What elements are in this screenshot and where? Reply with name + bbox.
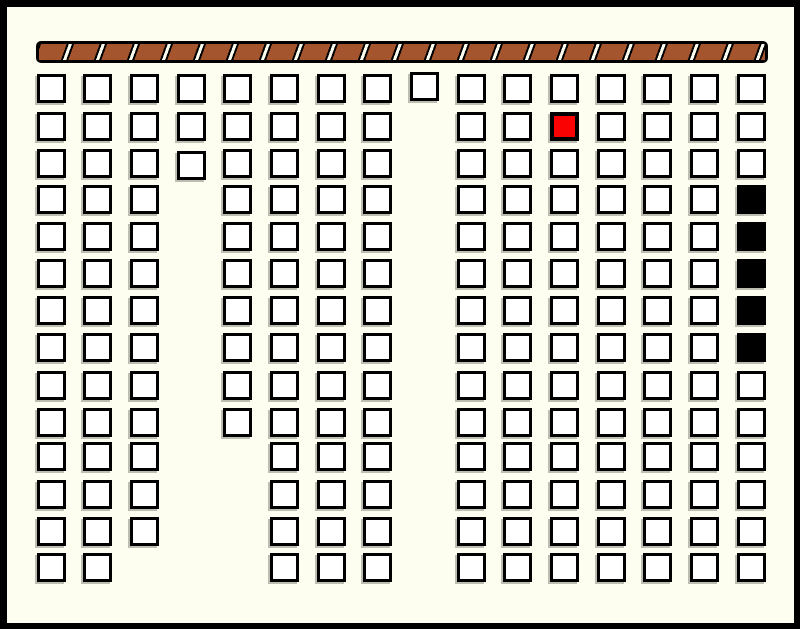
grid-cell[interactable] <box>270 296 299 325</box>
grid-cell-black[interactable] <box>737 296 766 325</box>
grid-cell[interactable] <box>317 185 346 214</box>
grid-cell[interactable] <box>643 74 672 103</box>
grid-cell[interactable] <box>457 259 486 288</box>
grid-cell[interactable] <box>457 185 486 214</box>
grid-cell[interactable] <box>223 333 252 362</box>
grid-cell[interactable] <box>737 149 766 178</box>
grid-cell[interactable] <box>223 259 252 288</box>
grid-cell[interactable] <box>130 408 159 437</box>
grid-cell[interactable] <box>130 149 159 178</box>
grid-cell[interactable] <box>503 259 532 288</box>
grid-cell[interactable] <box>503 408 532 437</box>
grid-cell[interactable] <box>737 517 766 546</box>
grid-cell[interactable] <box>83 408 112 437</box>
grid-cell[interactable] <box>550 259 579 288</box>
grid-cell-black[interactable] <box>737 222 766 251</box>
grid-cell[interactable] <box>643 517 672 546</box>
grid-cell[interactable] <box>37 296 66 325</box>
grid-cell[interactable] <box>457 371 486 400</box>
grid-cell[interactable] <box>737 112 766 141</box>
grid-cell[interactable] <box>83 222 112 251</box>
grid-cell[interactable] <box>597 408 626 437</box>
grid-cell[interactable] <box>457 112 486 141</box>
grid-cell-red[interactable] <box>550 112 579 141</box>
grid-cell[interactable] <box>317 442 346 471</box>
grid-cell[interactable] <box>690 480 719 509</box>
grid-cell[interactable] <box>643 333 672 362</box>
grid-cell[interactable] <box>177 151 206 180</box>
grid-cell[interactable] <box>503 480 532 509</box>
grid-cell[interactable] <box>317 74 346 103</box>
grid-cell[interactable] <box>317 259 346 288</box>
grid-cell[interactable] <box>223 222 252 251</box>
grid-cell[interactable] <box>37 333 66 362</box>
grid-cell[interactable] <box>690 333 719 362</box>
grid-cell[interactable] <box>83 442 112 471</box>
grid-cell[interactable] <box>83 259 112 288</box>
grid-cell[interactable] <box>503 371 532 400</box>
grid-cell[interactable] <box>37 149 66 178</box>
grid-cell[interactable] <box>37 112 66 141</box>
grid-cell[interactable] <box>83 517 112 546</box>
grid-cell[interactable] <box>503 553 532 582</box>
grid-cell[interactable] <box>130 185 159 214</box>
grid-cell[interactable] <box>37 517 66 546</box>
grid-cell[interactable] <box>690 371 719 400</box>
grid-cell[interactable] <box>550 408 579 437</box>
grid-cell[interactable] <box>690 149 719 178</box>
grid-cell[interactable] <box>597 259 626 288</box>
grid-cell[interactable] <box>503 112 532 141</box>
grid-cell[interactable] <box>363 296 392 325</box>
grid-cell[interactable] <box>363 74 392 103</box>
grid-cell[interactable] <box>503 296 532 325</box>
grid-cell[interactable] <box>363 259 392 288</box>
grid-cell[interactable] <box>550 480 579 509</box>
grid-cell[interactable] <box>270 517 299 546</box>
grid-cell[interactable] <box>550 442 579 471</box>
grid-cell[interactable] <box>317 112 346 141</box>
grid-cell[interactable] <box>363 222 392 251</box>
grid-cell[interactable] <box>317 222 346 251</box>
grid-cell[interactable] <box>130 74 159 103</box>
grid-cell[interactable] <box>503 442 532 471</box>
grid-cell[interactable] <box>317 296 346 325</box>
grid-cell[interactable] <box>410 72 439 101</box>
grid-cell[interactable] <box>597 296 626 325</box>
grid-cell[interactable] <box>597 112 626 141</box>
grid-cell[interactable] <box>177 112 206 141</box>
grid-cell[interactable] <box>457 408 486 437</box>
grid-cell[interactable] <box>37 371 66 400</box>
grid-cell[interactable] <box>597 442 626 471</box>
grid-cell[interactable] <box>270 371 299 400</box>
grid-cell[interactable] <box>270 112 299 141</box>
grid-cell-black[interactable] <box>737 259 766 288</box>
grid-cell[interactable] <box>737 408 766 437</box>
grid-cell[interactable] <box>643 112 672 141</box>
grid-cell[interactable] <box>223 371 252 400</box>
grid-cell[interactable] <box>643 259 672 288</box>
grid-cell[interactable] <box>83 480 112 509</box>
grid-cell[interactable] <box>37 222 66 251</box>
grid-cell[interactable] <box>597 74 626 103</box>
grid-cell[interactable] <box>83 333 112 362</box>
grid-cell[interactable] <box>363 112 392 141</box>
grid-cell[interactable] <box>690 185 719 214</box>
grid-cell[interactable] <box>83 149 112 178</box>
grid-cell[interactable] <box>37 442 66 471</box>
grid-cell[interactable] <box>643 149 672 178</box>
grid-cell[interactable] <box>597 222 626 251</box>
grid-cell[interactable] <box>643 185 672 214</box>
grid-cell[interactable] <box>503 333 532 362</box>
grid-cell[interactable] <box>597 517 626 546</box>
grid-cell[interactable] <box>363 408 392 437</box>
grid-cell[interactable] <box>270 222 299 251</box>
grid-cell[interactable] <box>550 185 579 214</box>
grid-cell[interactable] <box>457 442 486 471</box>
grid-cell[interactable] <box>363 149 392 178</box>
grid-cell[interactable] <box>690 259 719 288</box>
grid-cell[interactable] <box>223 74 252 103</box>
grid-cell[interactable] <box>597 149 626 178</box>
grid-cell[interactable] <box>223 112 252 141</box>
grid-cell[interactable] <box>83 112 112 141</box>
grid-cell[interactable] <box>737 74 766 103</box>
grid-cell[interactable] <box>83 371 112 400</box>
grid-cell[interactable] <box>457 480 486 509</box>
grid-cell[interactable] <box>550 296 579 325</box>
grid-cell[interactable] <box>550 333 579 362</box>
grid-cell[interactable] <box>597 553 626 582</box>
grid-cell[interactable] <box>503 149 532 178</box>
grid-cell[interactable] <box>737 480 766 509</box>
grid-cell[interactable] <box>643 480 672 509</box>
grid-cell[interactable] <box>690 296 719 325</box>
grid-cell[interactable] <box>690 222 719 251</box>
grid-cell-black[interactable] <box>737 333 766 362</box>
grid-cell[interactable] <box>690 517 719 546</box>
grid-cell[interactable] <box>130 442 159 471</box>
grid-cell[interactable] <box>503 185 532 214</box>
grid-cell[interactable] <box>130 480 159 509</box>
grid-cell[interactable] <box>270 74 299 103</box>
grid-cell[interactable] <box>643 408 672 437</box>
grid-cell[interactable] <box>550 149 579 178</box>
grid-cell[interactable] <box>270 553 299 582</box>
grid-cell[interactable] <box>643 296 672 325</box>
grid-cell[interactable] <box>690 112 719 141</box>
grid-cell[interactable] <box>37 480 66 509</box>
grid-cell[interactable] <box>83 553 112 582</box>
grid-cell[interactable] <box>550 371 579 400</box>
grid-cell[interactable] <box>270 480 299 509</box>
grid-cell[interactable] <box>503 517 532 546</box>
grid-cell[interactable] <box>690 408 719 437</box>
floor-plan-canvas <box>0 0 800 629</box>
grid-cell[interactable] <box>550 222 579 251</box>
grid-cell[interactable] <box>643 442 672 471</box>
grid-cell[interactable] <box>130 296 159 325</box>
grid-cell[interactable] <box>130 259 159 288</box>
grid-cell[interactable] <box>550 74 579 103</box>
grid-cell[interactable] <box>503 222 532 251</box>
grid-cell[interactable] <box>37 259 66 288</box>
grid-cell[interactable] <box>37 74 66 103</box>
grid-cell[interactable] <box>317 149 346 178</box>
grid-cell[interactable] <box>550 517 579 546</box>
grid-cell[interactable] <box>130 333 159 362</box>
grid-cell[interactable] <box>643 553 672 582</box>
grid-cell[interactable] <box>597 371 626 400</box>
grid-cell[interactable] <box>37 185 66 214</box>
hatched-bar <box>36 41 768 63</box>
grid-cell[interactable] <box>457 517 486 546</box>
grid-cell[interactable] <box>643 371 672 400</box>
grid-cell[interactable] <box>317 553 346 582</box>
grid-cell[interactable] <box>317 517 346 546</box>
grid-cell[interactable] <box>223 149 252 178</box>
grid-cell[interactable] <box>457 553 486 582</box>
grid-cell[interactable] <box>317 480 346 509</box>
grid-cell[interactable] <box>130 112 159 141</box>
grid-cell[interactable] <box>83 74 112 103</box>
grid-cell[interactable] <box>363 185 392 214</box>
grid-cell[interactable] <box>363 371 392 400</box>
grid-cell[interactable] <box>270 149 299 178</box>
grid-cell[interactable] <box>177 74 206 103</box>
grid-cell[interactable] <box>270 408 299 437</box>
grid-cell[interactable] <box>363 553 392 582</box>
hatched-bar-stripes <box>39 44 765 60</box>
grid-cell[interactable] <box>223 185 252 214</box>
grid-cell[interactable] <box>37 553 66 582</box>
grid-cell[interactable] <box>130 371 159 400</box>
grid-cell[interactable] <box>130 222 159 251</box>
grid-cell[interactable] <box>363 333 392 362</box>
grid-cell[interactable] <box>270 185 299 214</box>
grid-cell[interactable] <box>690 442 719 471</box>
grid-cell[interactable] <box>457 74 486 103</box>
grid-cell[interactable] <box>737 553 766 582</box>
grid-cell[interactable] <box>737 371 766 400</box>
grid-cell[interactable] <box>363 442 392 471</box>
grid-cell[interactable] <box>223 296 252 325</box>
grid-cell[interactable] <box>363 480 392 509</box>
grid-cell[interactable] <box>643 222 672 251</box>
grid-cell[interactable] <box>690 553 719 582</box>
grid-cell[interactable] <box>317 371 346 400</box>
grid-cell-black[interactable] <box>737 185 766 214</box>
grid-cell[interactable] <box>597 480 626 509</box>
grid-cell[interactable] <box>270 333 299 362</box>
grid-cell[interactable] <box>130 517 159 546</box>
grid-cell[interactable] <box>457 333 486 362</box>
grid-cell[interactable] <box>737 442 766 471</box>
grid-cell[interactable] <box>457 149 486 178</box>
grid-cell[interactable] <box>690 74 719 103</box>
grid-cell[interactable] <box>270 442 299 471</box>
grid-cell[interactable] <box>550 553 579 582</box>
grid-cell[interactable] <box>363 517 392 546</box>
grid-cell[interactable] <box>597 185 626 214</box>
grid-cell[interactable] <box>457 222 486 251</box>
grid-cell[interactable] <box>83 185 112 214</box>
grid-cell[interactable] <box>597 333 626 362</box>
grid-cell[interactable] <box>270 259 299 288</box>
grid-cell[interactable] <box>223 408 252 437</box>
grid-cell[interactable] <box>317 408 346 437</box>
grid-cell[interactable] <box>457 296 486 325</box>
grid-cell[interactable] <box>317 333 346 362</box>
grid-cell[interactable] <box>83 296 112 325</box>
grid-cell[interactable] <box>503 74 532 103</box>
grid-cell[interactable] <box>37 408 66 437</box>
